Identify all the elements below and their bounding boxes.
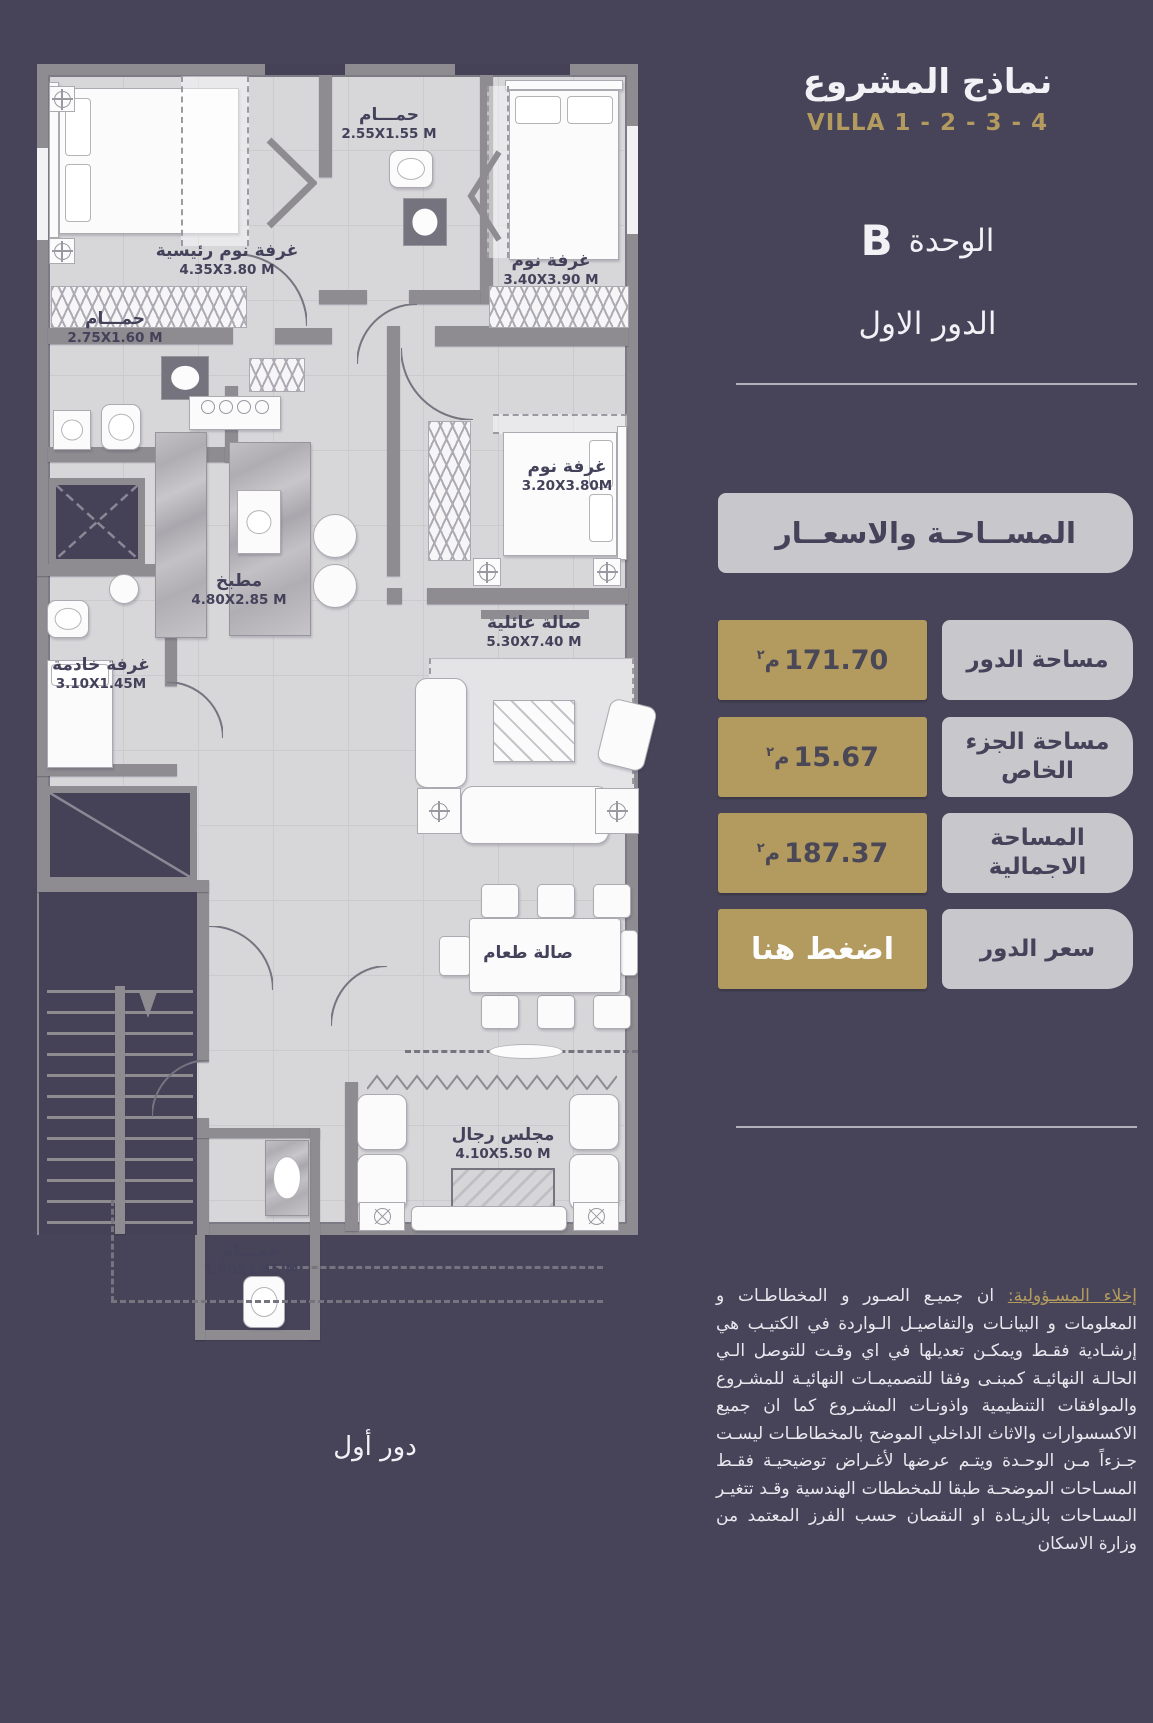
corner-table: [359, 1202, 405, 1231]
area-label-total: المساحة الاجمالية: [942, 813, 1133, 893]
kitchen-sink: [237, 490, 281, 554]
area-value-private: 15.67 م٢: [718, 717, 927, 797]
sofa: [461, 786, 609, 844]
stove: [189, 396, 281, 430]
window-slot: [455, 64, 570, 75]
chair: [481, 995, 519, 1029]
pillow: [567, 96, 613, 124]
wall: [195, 1330, 320, 1340]
toilet: [389, 150, 433, 188]
majlis-fringe: [367, 1074, 617, 1090]
room-label-bedroom-mid: غرفة نوم 3.20X3.80M: [522, 456, 612, 496]
nightstand: [473, 558, 501, 586]
side-table: [417, 788, 461, 834]
sink: [109, 574, 139, 604]
value-text: 187.37: [784, 838, 888, 869]
room-dim: 1.60X1.45 M: [203, 1262, 298, 1280]
section-header-areas-prices: المســاحـة والاسعــار: [718, 493, 1133, 573]
label-text: سعر الدور: [980, 935, 1095, 964]
door-arc: [209, 926, 273, 990]
window-slot: [265, 64, 345, 75]
sink: [403, 198, 447, 246]
wall: [319, 75, 332, 177]
sofa: [415, 678, 467, 788]
side-table: [313, 514, 357, 558]
unit-m: م: [765, 841, 780, 865]
elevator: [49, 478, 145, 566]
room-dim: 3.20X3.80M: [522, 478, 612, 496]
floor-label: الدور الاول: [718, 306, 1137, 342]
room-dim: 3.40X3.90 M: [503, 272, 598, 290]
room-dim: 2.75X1.60 M: [67, 330, 162, 348]
unit-row: الوحدة B: [718, 216, 1137, 265]
window: [37, 148, 48, 240]
room-name: غرفة نوم: [511, 250, 590, 272]
wall: [319, 290, 367, 304]
floor-cushion: [357, 1094, 407, 1150]
void-shaft: [43, 786, 197, 884]
wall: [197, 880, 209, 1062]
room-name: غرفة نوم: [527, 456, 606, 478]
room-dim: 4.80X2.85 M: [191, 592, 286, 610]
corner-table: [573, 1202, 619, 1231]
area-value-total: 187.37 م٢: [718, 813, 927, 893]
floor-caption: دور أول: [312, 1432, 438, 1462]
area-value-floor: 171.70 م٢: [718, 620, 927, 700]
bed-headboard: [505, 80, 623, 90]
disclaimer-body: ان جميـع الصـور و المخطاطـات و المعلومات…: [716, 1286, 1137, 1554]
chair: [481, 884, 519, 918]
room-label-bath-bottom: حمـــام 1.60X1.45 M: [203, 1240, 298, 1280]
wall: [310, 1128, 320, 1340]
side-table: [313, 564, 357, 608]
pillow: [515, 96, 561, 124]
wall: [435, 326, 628, 346]
unit-sup: ٢: [766, 745, 774, 760]
nightstand: [49, 238, 75, 264]
page-title: نماذج المشروع: [718, 62, 1137, 102]
door-arc: [152, 1060, 209, 1117]
label-text: مساحة الدور: [966, 646, 1108, 675]
wall: [427, 588, 628, 604]
value-text: 171.70: [784, 645, 888, 676]
window: [627, 126, 638, 234]
room-label-majlis: مجلس رجال 4.10X5.50 M: [452, 1124, 555, 1164]
door-chevron: [467, 148, 503, 244]
label-text: مساحة الجزء الخاص: [952, 728, 1123, 786]
curtain: [489, 1044, 563, 1059]
chair: [537, 995, 575, 1029]
setback-line: [267, 1266, 603, 1269]
unit-value: B: [861, 216, 893, 265]
vanity: [265, 1140, 309, 1216]
stair-flight: [47, 990, 115, 1230]
wardrobe: [489, 286, 629, 328]
wall: [195, 1128, 320, 1138]
room-label-maid-room: غرفة خادمة 3.10X1.45M: [52, 654, 150, 694]
click-here-text: اضغط هنا: [751, 932, 894, 967]
door-arc: [401, 348, 473, 420]
room-name: صالة طعام: [483, 942, 573, 964]
unit-text: م٢: [766, 745, 789, 769]
disclaimer: إخلاء المسـؤولية: ان جميـع الصـور و المخ…: [716, 1283, 1137, 1558]
divider: [736, 383, 1137, 385]
room-name: مطبخ: [216, 570, 262, 592]
area-label-price: سعر الدور: [942, 909, 1133, 989]
unit-m: م: [765, 648, 780, 672]
stair-divider: [115, 986, 125, 1234]
value-text: 15.67: [793, 742, 878, 773]
unit-m: م: [774, 745, 789, 769]
label-text: المساحة الاجمالية: [952, 824, 1123, 882]
room-name: مجلس رجال: [452, 1124, 555, 1146]
floor-plan: غرفة نوم رئيسية 4.35X3.80 M حمـــام 2.55…: [37, 64, 638, 1354]
room-name: حمـــام: [359, 104, 419, 126]
unit-text: م٢: [757, 841, 780, 865]
disclaimer-lead: إخلاء المسـؤولية:: [1008, 1286, 1137, 1306]
stair-direction-arrow: [139, 992, 157, 1018]
room-dim: 3.10X1.45M: [56, 676, 146, 694]
toilet: [101, 404, 141, 450]
unit-text: م٢: [757, 648, 780, 672]
room-name: صالة عائلية: [487, 612, 581, 634]
chair: [593, 995, 631, 1029]
room-name: حمـــام: [221, 1240, 281, 1262]
room-label-dining: صالة طعام: [483, 942, 573, 964]
room-dim: 4.10X5.50 M: [455, 1146, 550, 1164]
wall: [387, 588, 402, 604]
room-label-bath-top: حمـــام 2.55X1.55 M: [341, 104, 436, 144]
room-label-bedroom-right: غرفة نوم 3.40X3.90 M: [503, 250, 598, 290]
pillow: [65, 164, 91, 222]
room-name: حمـــام: [85, 308, 145, 330]
room-label-family-hall: صالة عائلية 5.30X7.40 M: [486, 612, 581, 652]
wardrobe: [428, 421, 471, 561]
rug: [181, 76, 249, 246]
divider: [736, 1126, 1137, 1128]
sofa: [411, 1206, 567, 1231]
unit-label: الوحدة: [909, 223, 995, 259]
room-dim: 2.55X1.55 M: [341, 126, 436, 144]
toilet: [47, 600, 89, 638]
room-dim: 4.35X3.80 M: [179, 262, 274, 280]
washer: [53, 410, 91, 450]
area-label-private: مساحة الجزء الخاص: [942, 717, 1133, 797]
floor-price-button[interactable]: اضغط هنا: [718, 909, 927, 989]
door-chevron: [265, 136, 317, 230]
nightstand: [49, 86, 75, 112]
setback-line: [111, 1300, 603, 1303]
coffee-table: [493, 700, 575, 762]
room-label-bath-left: حمـــام 2.75X1.60 M: [67, 308, 162, 348]
pillow: [589, 494, 613, 542]
room-label-master-bedroom: غرفة نوم رئيسية 4.35X3.80 M: [156, 240, 299, 280]
wall: [275, 328, 332, 344]
rug: [493, 414, 627, 434]
room-label-kitchen: مطبخ 4.80X2.85 M: [191, 570, 286, 610]
room-name: غرفة نوم رئيسية: [156, 240, 299, 262]
chair: [439, 936, 471, 976]
side-table: [595, 788, 639, 834]
shoe-cabinet: [249, 358, 305, 392]
setback-line: [111, 1200, 114, 1302]
door-arc: [167, 682, 223, 738]
nightstand: [593, 558, 621, 586]
unit-sup: ٢: [757, 648, 765, 663]
floor-cushion: [569, 1094, 619, 1150]
sink: [161, 356, 209, 400]
bed-headboard: [617, 426, 627, 560]
unit-sup: ٢: [757, 841, 765, 856]
room-name: غرفة خادمة: [52, 654, 150, 676]
chair: [620, 930, 638, 976]
wall: [409, 290, 480, 304]
area-label-floor: مساحة الدور: [942, 620, 1133, 700]
room-dim: 5.30X7.40 M: [486, 634, 581, 652]
door-arc: [331, 966, 387, 1026]
villa-subtitle: VILLA 1 - 2 - 3 - 4: [718, 110, 1137, 136]
chair: [593, 884, 631, 918]
chair: [537, 884, 575, 918]
brochure-page: غرفة نوم رئيسية 4.35X3.80 M حمـــام 2.55…: [0, 0, 1153, 1723]
